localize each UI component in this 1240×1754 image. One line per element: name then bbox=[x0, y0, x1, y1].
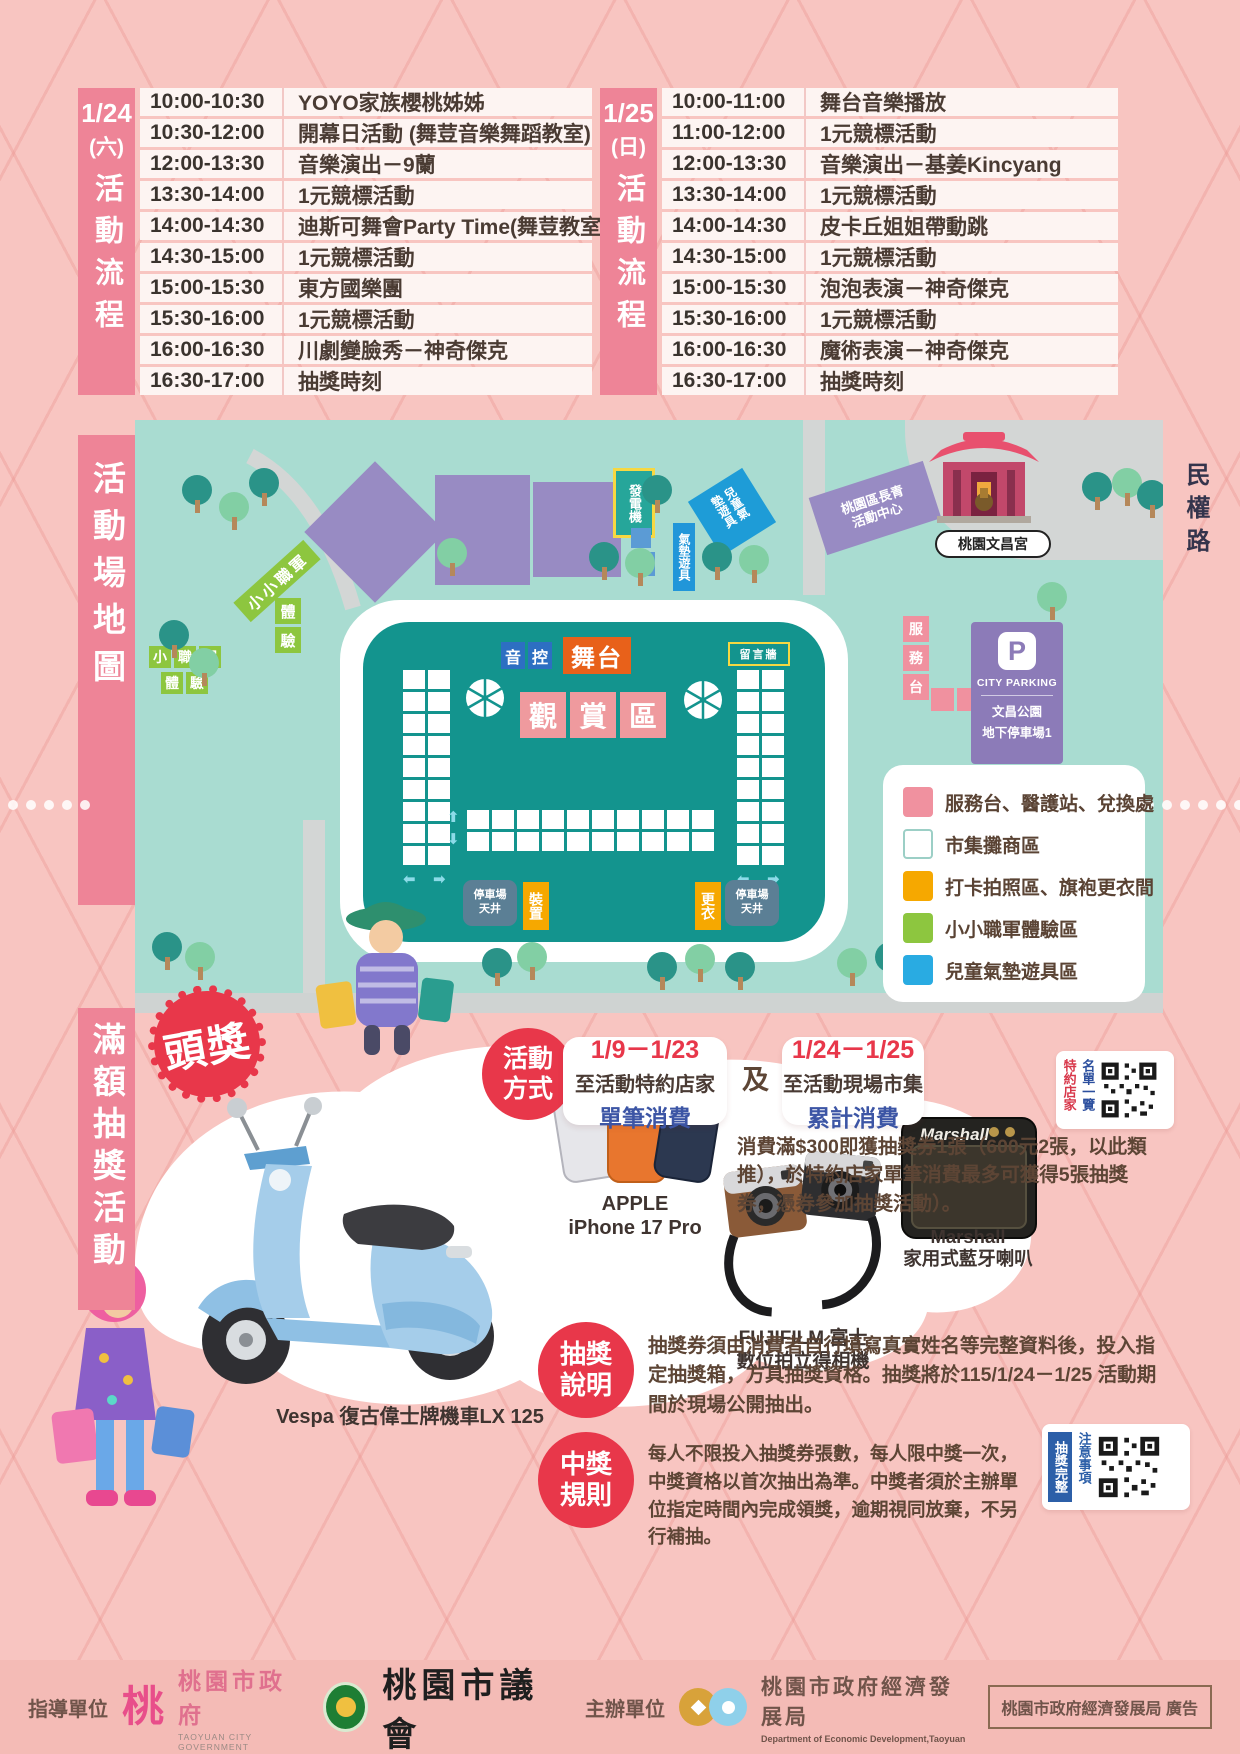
table-row: 11:00-12:001元競標活動 bbox=[662, 119, 1118, 147]
message-wall-label: 留言牆 bbox=[728, 642, 790, 666]
umbrella-icon bbox=[681, 678, 725, 722]
sound-control-label: 音 控 bbox=[501, 642, 552, 669]
city-council-emblem bbox=[323, 1682, 368, 1732]
draw-info-badge: 抽獎說明 bbox=[538, 1322, 634, 1418]
legend-item: 兒童氣墊遊具區 bbox=[903, 949, 1145, 991]
tree-icon bbox=[640, 475, 674, 513]
stall-grid-bottom bbox=[467, 810, 714, 851]
table-row: 13:30-14:001元競標活動 bbox=[140, 181, 592, 209]
table-row: 16:30-17:00抽獎時刻 bbox=[140, 367, 592, 395]
table-row: 10:00-11:00舞台音樂播放 bbox=[662, 88, 1118, 116]
schedule-table-sun: 10:00-11:00舞台音樂播放 11:00-12:001元競標活動 12:0… bbox=[662, 88, 1118, 398]
table-row: 10:30-12:00開幕日活動 (舞荳音樂舞蹈教室) bbox=[140, 119, 592, 147]
legend-item: 市集攤商區 bbox=[903, 823, 1145, 865]
direction-arrow: ⬇ bbox=[447, 830, 460, 848]
method-card-2: 1/24－1/25 至活動現場市集 累計消費 bbox=[782, 1037, 924, 1125]
ad-disclaimer-box: 桃園市政府經濟發展局 廣告 bbox=[988, 1685, 1212, 1729]
rules-qr-badge: 抽獎完整 注意事項 bbox=[1042, 1424, 1190, 1510]
install-label: 裝置 bbox=[523, 882, 549, 930]
kids-air-zone-label: 兒童氣墊遊具 bbox=[707, 485, 757, 540]
legend-swatch bbox=[903, 787, 933, 817]
tree-icon bbox=[187, 648, 221, 686]
map-section-title: 活動場地圖 bbox=[83, 461, 131, 696]
method-card-1: 1/9－1/23 至活動特約店家 單筆消費 bbox=[563, 1037, 727, 1125]
guide-units-label: 指導單位 bbox=[28, 1693, 108, 1722]
temple-name-pill: 桃園文昌宮 bbox=[935, 530, 1051, 558]
experience-label: 體 驗 bbox=[275, 598, 301, 653]
schedule-title: 活動流程 bbox=[86, 173, 128, 341]
air-cushion-block bbox=[631, 528, 651, 548]
qr-label-red: 特約店家 bbox=[1062, 1059, 1076, 1121]
parking-icon: P bbox=[998, 632, 1036, 670]
note-paragraph: 消費滿$300即獲抽獎券1張（600元2張，以此類推），於特約店家單筆消費最多可… bbox=[737, 1133, 1149, 1218]
legend-swatch bbox=[903, 829, 933, 859]
table-row: 15:30-16:001元競標活動 bbox=[662, 305, 1118, 333]
direction-arrow: ⬆ bbox=[447, 808, 460, 826]
tree-icon bbox=[183, 942, 217, 980]
schedule-sidebar-sun: 1/25 (日) 活動流程 bbox=[600, 88, 657, 395]
changing-label: 更衣 bbox=[695, 882, 721, 930]
legend-item: 打卡拍照區、旗袍更衣間 bbox=[903, 865, 1145, 907]
econ-dev-name: 桃園市政府經濟發展局 Department of Economic Develo… bbox=[761, 1671, 974, 1744]
legend-swatch bbox=[903, 955, 933, 985]
qr-code-icon bbox=[1099, 1060, 1159, 1120]
stage-label: 舞台 bbox=[563, 637, 631, 674]
tree-icon bbox=[683, 944, 717, 982]
tree-icon bbox=[435, 538, 469, 576]
air-equipment-label: 氣墊遊具 bbox=[673, 523, 695, 591]
method-badge: 活動方式 bbox=[482, 1028, 574, 1120]
tree-icon bbox=[150, 932, 184, 970]
viewing-area: 觀 賞 區 bbox=[520, 692, 666, 738]
qr-label-blue-text: 注意事項 bbox=[1077, 1432, 1091, 1502]
host-units-label: 主辦單位 bbox=[585, 1693, 665, 1722]
table-row: 15:30-16:001元競標活動 bbox=[140, 305, 592, 333]
map-legend: 服務台、醫護站、兌換處 市集攤商區 打卡拍照區、旗袍更衣間 小小職軍體驗區 兒童… bbox=[883, 765, 1145, 1002]
parking-building: P CITY PARKING 文昌公園 地下停車場1 bbox=[971, 622, 1063, 764]
parking-patio: 停車場天井 bbox=[725, 880, 779, 926]
stall-grid-left bbox=[403, 670, 450, 865]
table-row: 14:30-15:001元競標活動 bbox=[662, 243, 1118, 271]
map-sidebar: 活動場地圖 bbox=[78, 435, 135, 905]
legend-item: 小小職軍體驗區 bbox=[903, 907, 1145, 949]
table-row: 14:30-15:001元競標活動 bbox=[140, 243, 592, 271]
poster-page: 1/24 (六) 活動流程 10:00-10:30YOYO家族櫻桃姊姊 10:3… bbox=[0, 0, 1240, 1754]
schedule-date: 1/25 bbox=[603, 98, 654, 129]
and-text: 及 bbox=[742, 1058, 769, 1097]
iphone-label: APPLE iPhone 17 Pro bbox=[545, 1192, 725, 1240]
shopper-illustration bbox=[268, 885, 478, 1060]
tree-icon bbox=[157, 620, 191, 658]
draw-info-text: 抽獎券須由消費者自行填寫真實姓名等完整資料後，投入指定抽獎箱，方具抽獎資格。抽獎… bbox=[648, 1332, 1164, 1420]
service-desk: 服 務 台 bbox=[903, 616, 929, 700]
tree-icon bbox=[587, 542, 621, 580]
table-row: 16:00-16:30魔術表演－神奇傑克 bbox=[662, 336, 1118, 364]
tree-icon bbox=[515, 942, 549, 980]
senior-center-building: 桃園區長青活動中心 bbox=[809, 461, 942, 555]
tree-icon bbox=[645, 952, 679, 990]
partners-qr-badge: 特約店家 名單一覽 bbox=[1056, 1051, 1174, 1129]
tree-icon bbox=[723, 952, 757, 990]
schedule-date: 1/24 bbox=[81, 98, 132, 129]
taoyuan-gov-name: 桃園市政府 TAOYUAN CITY GOVERNMENT bbox=[178, 1662, 309, 1752]
tree-icon bbox=[217, 492, 251, 530]
city-council-name: 桃園市議會 bbox=[382, 1658, 555, 1754]
legend-swatch bbox=[903, 871, 933, 901]
win-rules-text: 每人不限投入抽獎券張數，每人限中獎一次，中獎資格以首次抽出為準。中獎者須於主辦單… bbox=[648, 1440, 1036, 1551]
legend-swatch bbox=[903, 913, 933, 943]
win-rules-badge: 中獎規則 bbox=[538, 1432, 634, 1528]
marshall-label: Marshall 家用式藍牙喇叭 bbox=[888, 1226, 1048, 1270]
senior-center-label: 桃園區長青活動中心 bbox=[837, 482, 914, 535]
table-row: 13:30-14:001元競標活動 bbox=[662, 181, 1118, 209]
table-row: 15:00-15:30泡泡表演－神奇傑克 bbox=[662, 274, 1118, 302]
taoyuan-gov-logo: 桃 bbox=[122, 1686, 164, 1728]
tree-icon bbox=[480, 948, 514, 986]
schedule-sidebar-sat: 1/24 (六) 活動流程 bbox=[78, 88, 135, 395]
tree-icon bbox=[700, 542, 734, 580]
tree-icon bbox=[247, 468, 281, 506]
umbrella-icon bbox=[463, 676, 507, 720]
legend-item: 服務台、醫護站、兌換處 bbox=[903, 781, 1145, 823]
table-row: 16:00-16:30川劇變臉秀－神奇傑克 bbox=[140, 336, 592, 364]
tree-icon bbox=[1035, 582, 1069, 620]
street-name: 民權路 bbox=[1178, 462, 1213, 561]
table-row: 10:00-10:30YOYO家族櫻桃姊姊 bbox=[140, 88, 592, 116]
footer: 指導單位 桃 桃園市政府 TAOYUAN CITY GOVERNMENT 桃園市… bbox=[0, 1660, 1240, 1754]
table-row: 12:00-13:30音樂演出－9蘭 bbox=[140, 150, 592, 178]
table-row: 12:00-13:30音樂演出－基姜Kincyang bbox=[662, 150, 1118, 178]
table-row: 14:00-14:30迪斯可舞會Party Time(舞荳教室) bbox=[140, 212, 592, 240]
vespa-label: Vespa 復古偉士牌機車LX 125 bbox=[240, 1400, 580, 1429]
schedule-weekday: (日) bbox=[611, 131, 646, 161]
temple-icon bbox=[923, 426, 1045, 526]
stall-grid-right bbox=[737, 670, 784, 865]
qr-label-blue: 名單一覽 bbox=[1081, 1059, 1095, 1121]
tree-icon bbox=[623, 548, 657, 586]
schedule-weekday: (六) bbox=[89, 131, 124, 161]
tree-icon bbox=[737, 545, 771, 583]
schedule-title: 活動流程 bbox=[608, 173, 650, 341]
schedule-table-sat: 10:00-10:30YOYO家族櫻桃姊姊 10:30-12:00開幕日活動 (… bbox=[140, 88, 592, 398]
tree-icon bbox=[1135, 480, 1163, 518]
qr-code-icon bbox=[1096, 1434, 1162, 1500]
tree-icon bbox=[835, 948, 869, 986]
promo-section-title: 滿額抽獎活動 bbox=[83, 1022, 131, 1274]
qr-label-blue-bg: 抽獎完整 bbox=[1048, 1432, 1072, 1502]
table-row: 14:00-14:30皮卡丘姐姐帶動跳 bbox=[662, 212, 1118, 240]
econ-dev-logo bbox=[679, 1688, 747, 1726]
promo-sidebar: 滿額抽獎活動 bbox=[78, 1008, 135, 1310]
tree-icon bbox=[1080, 472, 1114, 510]
decorative-dots bbox=[8, 800, 90, 810]
tree-icon bbox=[180, 475, 214, 513]
table-row: 16:30-17:00抽獎時刻 bbox=[662, 367, 1118, 395]
table-row: 15:00-15:30東方國樂團 bbox=[140, 274, 592, 302]
